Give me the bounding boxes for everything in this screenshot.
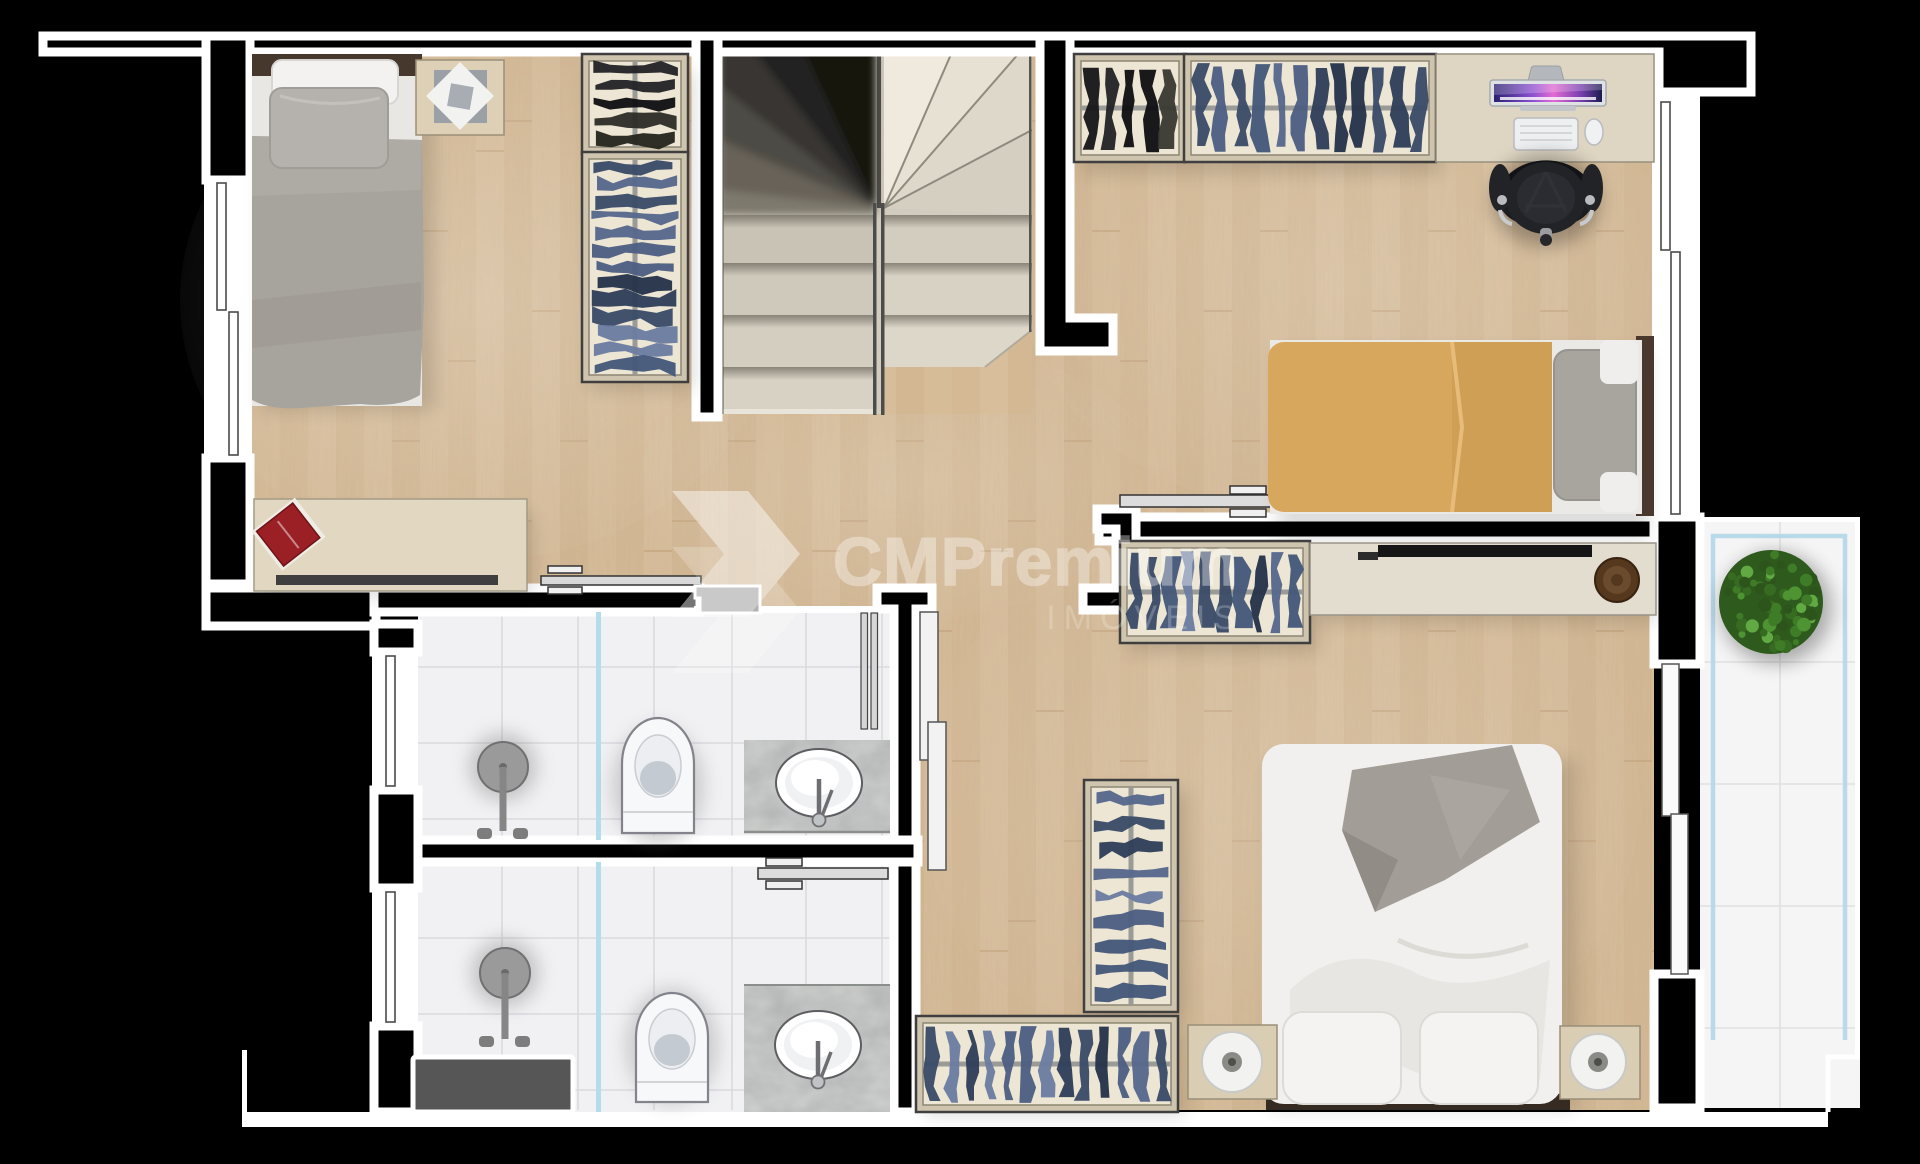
svg-text:IMÓVEIS: IMÓVEIS: [1046, 599, 1244, 637]
svg-text:CMPremium: CMPremium: [833, 524, 1239, 600]
